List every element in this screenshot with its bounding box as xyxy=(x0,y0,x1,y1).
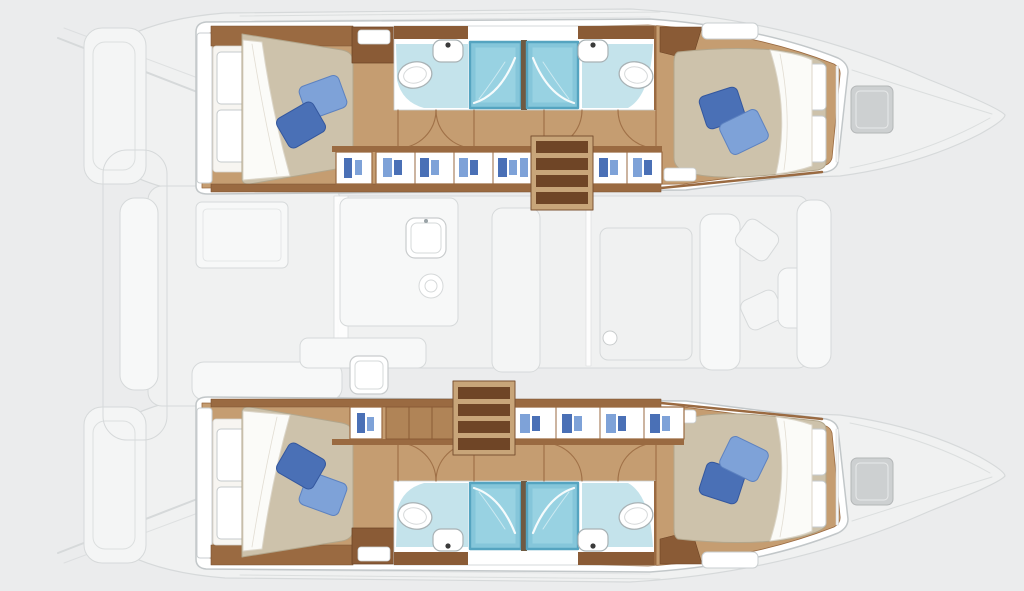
forward-window-band xyxy=(797,200,831,368)
galley-counter xyxy=(340,198,458,326)
stern-bench xyxy=(120,198,158,390)
cockpit-table xyxy=(196,202,288,268)
galley-island xyxy=(492,208,540,372)
wardrobes-port xyxy=(332,146,662,184)
mast-step xyxy=(603,331,617,345)
galley-sink-aft xyxy=(350,356,388,394)
sliding-door-track xyxy=(586,198,591,366)
cabinet-plain xyxy=(386,407,454,439)
locker xyxy=(350,407,382,439)
locker xyxy=(336,152,372,184)
wardrobe-rail xyxy=(592,146,662,152)
port-hull xyxy=(196,19,848,210)
wardrobe-row xyxy=(512,407,684,439)
galley-faucet xyxy=(424,219,428,223)
catamaran-floorplan: Catamaran interior layout floor plan, to… xyxy=(0,0,1024,591)
saloon-sofa xyxy=(700,214,740,370)
wardrobe-rail xyxy=(332,439,456,445)
wardrobe-row xyxy=(376,152,532,184)
wardrobe-rail xyxy=(512,439,684,445)
floorplan-svg: Catamaran interior layout floor plan, to… xyxy=(0,0,1024,591)
companionway-stairs-starboard xyxy=(453,381,515,455)
companionway-stairs-port xyxy=(531,136,593,210)
starboard-hull xyxy=(196,381,848,572)
wardrobe-rail xyxy=(332,146,532,152)
stove-burner xyxy=(419,274,443,298)
wardrobe-row xyxy=(592,152,662,184)
galley-sink xyxy=(406,218,446,258)
